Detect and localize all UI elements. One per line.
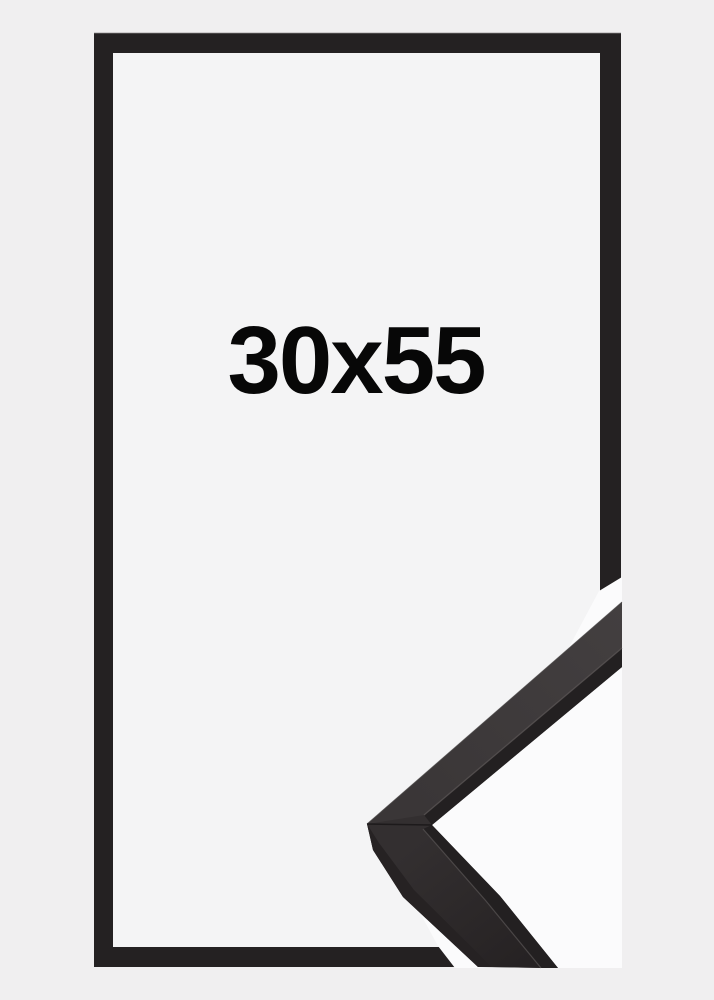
product-image: 30x55 — [0, 0, 714, 1000]
corner-detail-mitre-seam — [367, 824, 432, 825]
frame-size-label: 30x55 — [228, 307, 485, 414]
product-image-canvas: 30x55 — [0, 0, 714, 1000]
